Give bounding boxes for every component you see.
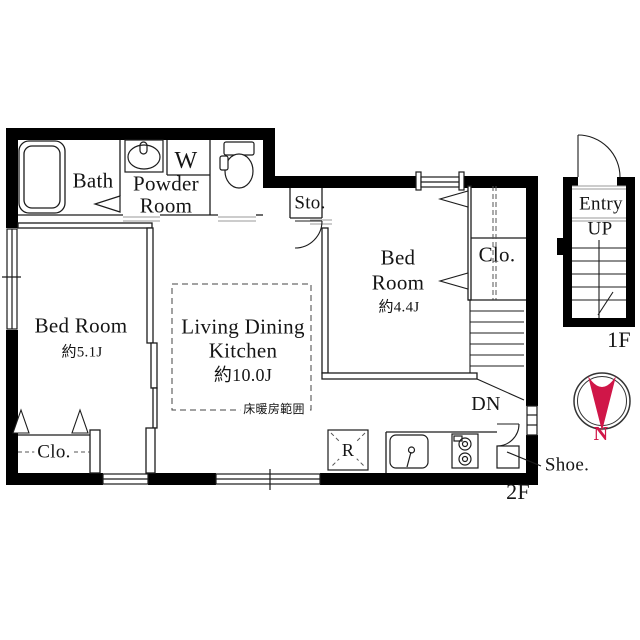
stairs-down-label: DN: [471, 394, 501, 414]
floor-plan: Bath W Powder Room Sto. Bed Room 約4.4J C…: [0, 0, 640, 640]
floor-1f-label: 1F: [607, 329, 631, 351]
bedroom-44-label-line2: Room: [372, 273, 425, 294]
bath-door-icon: [95, 196, 120, 212]
closet-51-label: Clo.: [34, 443, 73, 462]
storage-label: Sto.: [294, 194, 325, 213]
powder-room-label-line1: Powder: [133, 174, 199, 195]
toilet-icon: [220, 142, 254, 188]
entry-label: Entry: [579, 195, 623, 214]
bedroom-44-size: 約4.4J: [378, 301, 419, 316]
closet-44-label: Clo.: [479, 245, 516, 266]
kitchen-sink-icon: [390, 435, 428, 468]
stairs-down-icon: [470, 300, 524, 400]
bedroom-51-size: 約5.1J: [61, 346, 102, 361]
sink-icon: [125, 140, 163, 172]
floor-2f-label: 2F: [506, 481, 530, 503]
washer-label: W: [175, 149, 198, 173]
refrigerator-label: R: [339, 441, 357, 459]
bath-label: Bath: [73, 171, 114, 192]
stairs-up-label: UP: [588, 220, 613, 239]
bedroom-51-label: Bed Room: [35, 316, 128, 337]
north-label: N: [594, 424, 609, 444]
powder-room-label-line2: Room: [140, 196, 193, 217]
ldk-size: 約10.0J: [214, 366, 272, 384]
shoe-label: Shoe.: [545, 456, 589, 475]
ldk-label-line1: Living Dining: [181, 317, 304, 338]
stairs-up-icon: [572, 240, 626, 318]
bedroom-44-label-line1: Bed: [381, 248, 416, 269]
stove-icon: [452, 434, 478, 468]
floor-heating-label: 床暖房範囲: [240, 403, 308, 415]
ldk-label-line2: Kitchen: [209, 341, 278, 362]
bathtub-icon: [19, 141, 65, 213]
